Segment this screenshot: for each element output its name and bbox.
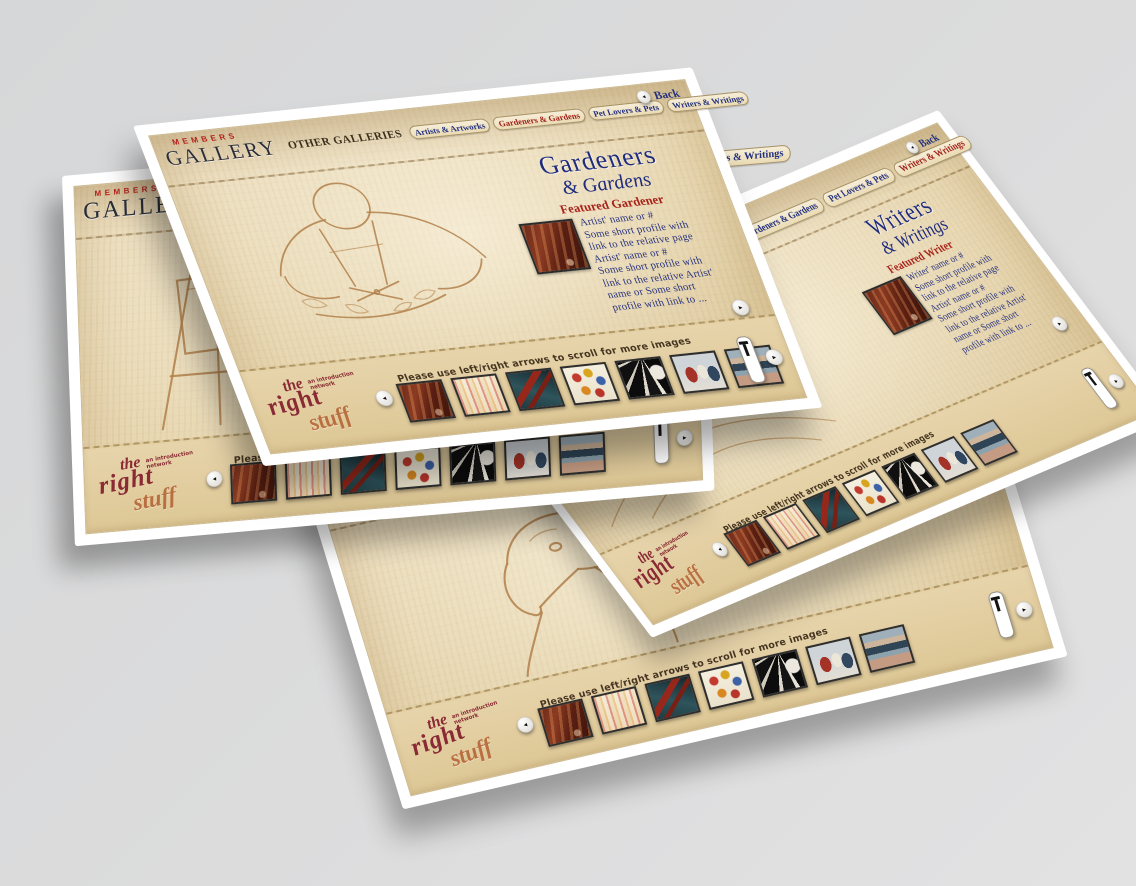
scroll-left-button[interactable]: ◂: [709, 540, 730, 558]
thumbnail-light-rays-painting[interactable]: [752, 649, 809, 698]
page-paper: MEMBERS GALLERY OTHER GALLERIESArtists &…: [148, 79, 807, 454]
tab-pet-lovers-pets[interactable]: Pet Lovers & Pets: [586, 100, 666, 121]
members-gallery-logo: MEMBERS GALLERY: [159, 129, 280, 170]
featured-row: Artist' name or # Some short profile wit…: [518, 203, 760, 321]
strip-content: Please use left/right arrows to scroll f…: [390, 335, 745, 422]
scroll-right-button[interactable]: ▸: [1014, 600, 1034, 619]
scroll-right-button[interactable]: ▸: [1105, 372, 1126, 390]
logo-tagline: an introduction network: [451, 697, 510, 726]
tab-other-galleries[interactable]: OTHER GALLERIES: [282, 127, 409, 153]
tab-gardeners-gardens[interactable]: Gardeners & Gardens: [491, 108, 587, 131]
thumbnail-figures-painting[interactable]: [669, 350, 730, 393]
thumbnail-flower-abstract-painting[interactable]: [698, 661, 755, 710]
scroll-left-button[interactable]: ◂: [373, 390, 395, 407]
strip-scrollbar[interactable]: [987, 590, 1016, 639]
thumbnail-seascape-painting[interactable]: [859, 624, 916, 673]
scroll-right-button[interactable]: ▸: [676, 429, 692, 446]
gardener-sketch: [173, 157, 531, 343]
featured-column: Gardeners & Gardens Featured Gardener Ar…: [486, 135, 760, 321]
thumbnail-red-shoes-painting[interactable]: [505, 368, 566, 411]
right-stuff-logo: the an introduction network right stuff: [617, 528, 728, 611]
thumbnail-flower-abstract-painting[interactable]: [560, 362, 621, 405]
right-stuff-logo: the an introduction network right stuff: [403, 698, 519, 782]
featured-profile-text: Artist' name or # Some short profile wit…: [578, 206, 725, 314]
featured-artwork-thumbnail[interactable]: [518, 219, 591, 275]
tab-artists-artworks[interactable]: Artists & Artworks: [407, 118, 492, 140]
thumbnail-figures-painting[interactable]: [805, 637, 862, 686]
next-featured-button[interactable]: ▸: [730, 299, 752, 316]
thumbnail-light-rays-painting[interactable]: [614, 356, 675, 399]
presentation-canvas: MEMBERS GALLERY OTHER GALLERIESArtists &…: [0, 0, 1136, 886]
scroll-left-button[interactable]: ◂: [515, 715, 535, 734]
scroll-left-button[interactable]: ◂: [206, 470, 222, 487]
scrollbar-handle[interactable]: [738, 341, 748, 345]
scrollbar-handle[interactable]: [1084, 372, 1092, 377]
thumbnail-light-rays-painting[interactable]: [449, 441, 496, 485]
logo-tagline: an introduction network: [145, 448, 204, 470]
thumbnail-canyon-figure-painting[interactable]: [396, 379, 457, 422]
thumbnail-seascape-painting[interactable]: [559, 432, 606, 476]
back-label: Back: [652, 87, 681, 101]
right-stuff-logo: the an introduction network right stuff: [257, 369, 380, 441]
scrollbar-handle[interactable]: [990, 596, 1000, 601]
thumbnail-canyon-figure-painting[interactable]: [230, 460, 277, 504]
thumbnail-figures-painting[interactable]: [504, 436, 551, 480]
thumbnail-flower-abstract-painting[interactable]: [394, 446, 441, 490]
right-stuff-logo: the an introduction network right stuff: [98, 448, 200, 521]
thumbnail-crowd-scene-painting[interactable]: [450, 373, 511, 416]
next-featured-button[interactable]: ▸: [1049, 315, 1070, 333]
